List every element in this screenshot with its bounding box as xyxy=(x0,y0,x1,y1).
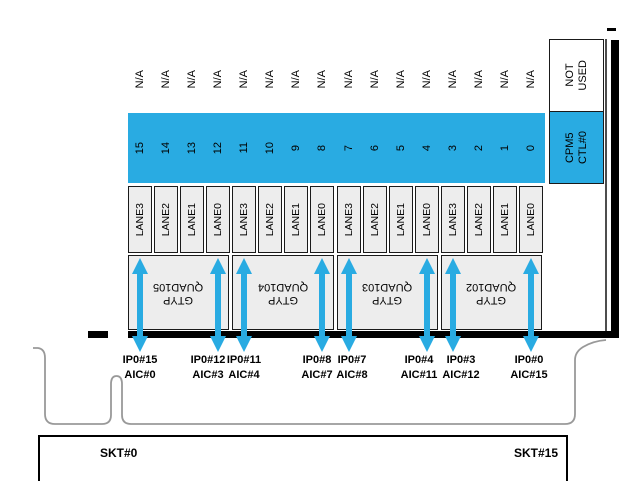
connection-label: IP0#15AIC#0 xyxy=(108,353,172,383)
lane-box: LANE3 xyxy=(441,186,465,253)
ip-port-label: IP0#15 xyxy=(108,353,172,368)
pin-number: 14 xyxy=(154,113,178,183)
connection-arrow xyxy=(314,258,330,352)
lane-box: LANE3 xyxy=(128,186,152,253)
lane-box: LANE0 xyxy=(415,186,439,253)
ip-port-label: IP0#0 xyxy=(497,353,561,368)
pin-number: 6 xyxy=(363,113,387,183)
lane-box: LANE0 xyxy=(206,186,230,253)
pin-number: 11 xyxy=(232,113,256,183)
lane-box: LANE1 xyxy=(389,186,413,253)
gtyp-quad-label: GTYPQUAD103 xyxy=(362,280,412,306)
lane-box: LANE1 xyxy=(284,186,308,253)
na-label: N/A xyxy=(258,50,282,108)
lane-box: LANE3 xyxy=(232,186,256,253)
lane-box: LANE1 xyxy=(180,186,204,253)
ip-port-label: IP0#11 xyxy=(212,353,276,368)
aic-label: AIC#15 xyxy=(497,368,561,383)
gtyp-quad-label: GTYPQUAD105 xyxy=(153,280,203,306)
connection-arrow xyxy=(341,258,357,352)
socket-0-label: SKT#0 xyxy=(100,446,137,460)
pin-number: 10 xyxy=(258,113,282,183)
connection-arrow xyxy=(523,258,539,352)
connection-label: IP0#11AIC#4 xyxy=(212,353,276,383)
lane-box: LANE2 xyxy=(363,186,387,253)
pin-number: 9 xyxy=(284,113,308,183)
na-label: N/A xyxy=(284,50,308,108)
ip-port-label: IP0#3 xyxy=(429,353,493,368)
connection-label: IP0#7AIC#8 xyxy=(320,353,384,383)
lane-box: LANE1 xyxy=(493,186,517,253)
na-label: N/A xyxy=(519,50,543,108)
na-label: N/A xyxy=(389,50,413,108)
gtyp-quad-label: GTYPQUAD104 xyxy=(258,280,308,306)
na-label: N/A xyxy=(310,50,334,108)
na-label: N/A xyxy=(232,50,256,108)
aic-label: AIC#4 xyxy=(212,368,276,383)
na-label: N/A xyxy=(467,50,491,108)
pin-number: 3 xyxy=(441,113,465,183)
pin-number: 15 xyxy=(128,113,152,183)
na-label: N/A xyxy=(154,50,178,108)
na-label: N/A xyxy=(206,50,230,108)
na-label: N/A xyxy=(128,50,152,108)
pin-number: 1 xyxy=(493,113,517,183)
pin-number: 8 xyxy=(310,113,334,183)
lane-box: LANE3 xyxy=(337,186,361,253)
pin-number: 5 xyxy=(389,113,413,183)
connection-arrow xyxy=(132,258,148,352)
ip-port-label: IP0#7 xyxy=(320,353,384,368)
pin-number: 2 xyxy=(467,113,491,183)
pin-number: 0 xyxy=(519,113,543,183)
na-label: N/A xyxy=(337,50,361,108)
pin-number: 7 xyxy=(337,113,361,183)
aic-label: AIC#0 xyxy=(108,368,172,383)
connection-arrow xyxy=(210,258,226,352)
pin-number: 12 xyxy=(206,113,230,183)
na-label: N/A xyxy=(493,50,517,108)
na-label: N/A xyxy=(180,50,204,108)
na-label: N/A xyxy=(363,50,387,108)
connection-arrow xyxy=(445,258,461,352)
pin-number: 13 xyxy=(180,113,204,183)
lane-box: LANE2 xyxy=(467,186,491,253)
socket-15-label: SKT#15 xyxy=(450,446,558,460)
connection-label: IP0#3AIC#12 xyxy=(429,353,493,383)
pcie-lane-mapping-diagram: NOT USED CPM5 CTL#0 REFCLK0 SKT#0 SKT#15… xyxy=(0,0,634,481)
connection-arrow xyxy=(419,258,435,352)
connection-label: IP0#0AIC#15 xyxy=(497,353,561,383)
connection-arrow xyxy=(236,258,252,352)
lane-box: LANE2 xyxy=(258,186,282,253)
gtyp-quad-label: GTYPQUAD102 xyxy=(466,280,516,306)
pin-number: 4 xyxy=(415,113,439,183)
lane-box: LANE0 xyxy=(519,186,543,253)
lane-box: LANE2 xyxy=(154,186,178,253)
aic-label: AIC#12 xyxy=(429,368,493,383)
na-label: N/A xyxy=(441,50,465,108)
lane-box: LANE0 xyxy=(310,186,334,253)
aic-label: AIC#8 xyxy=(320,368,384,383)
na-label: N/A xyxy=(415,50,439,108)
